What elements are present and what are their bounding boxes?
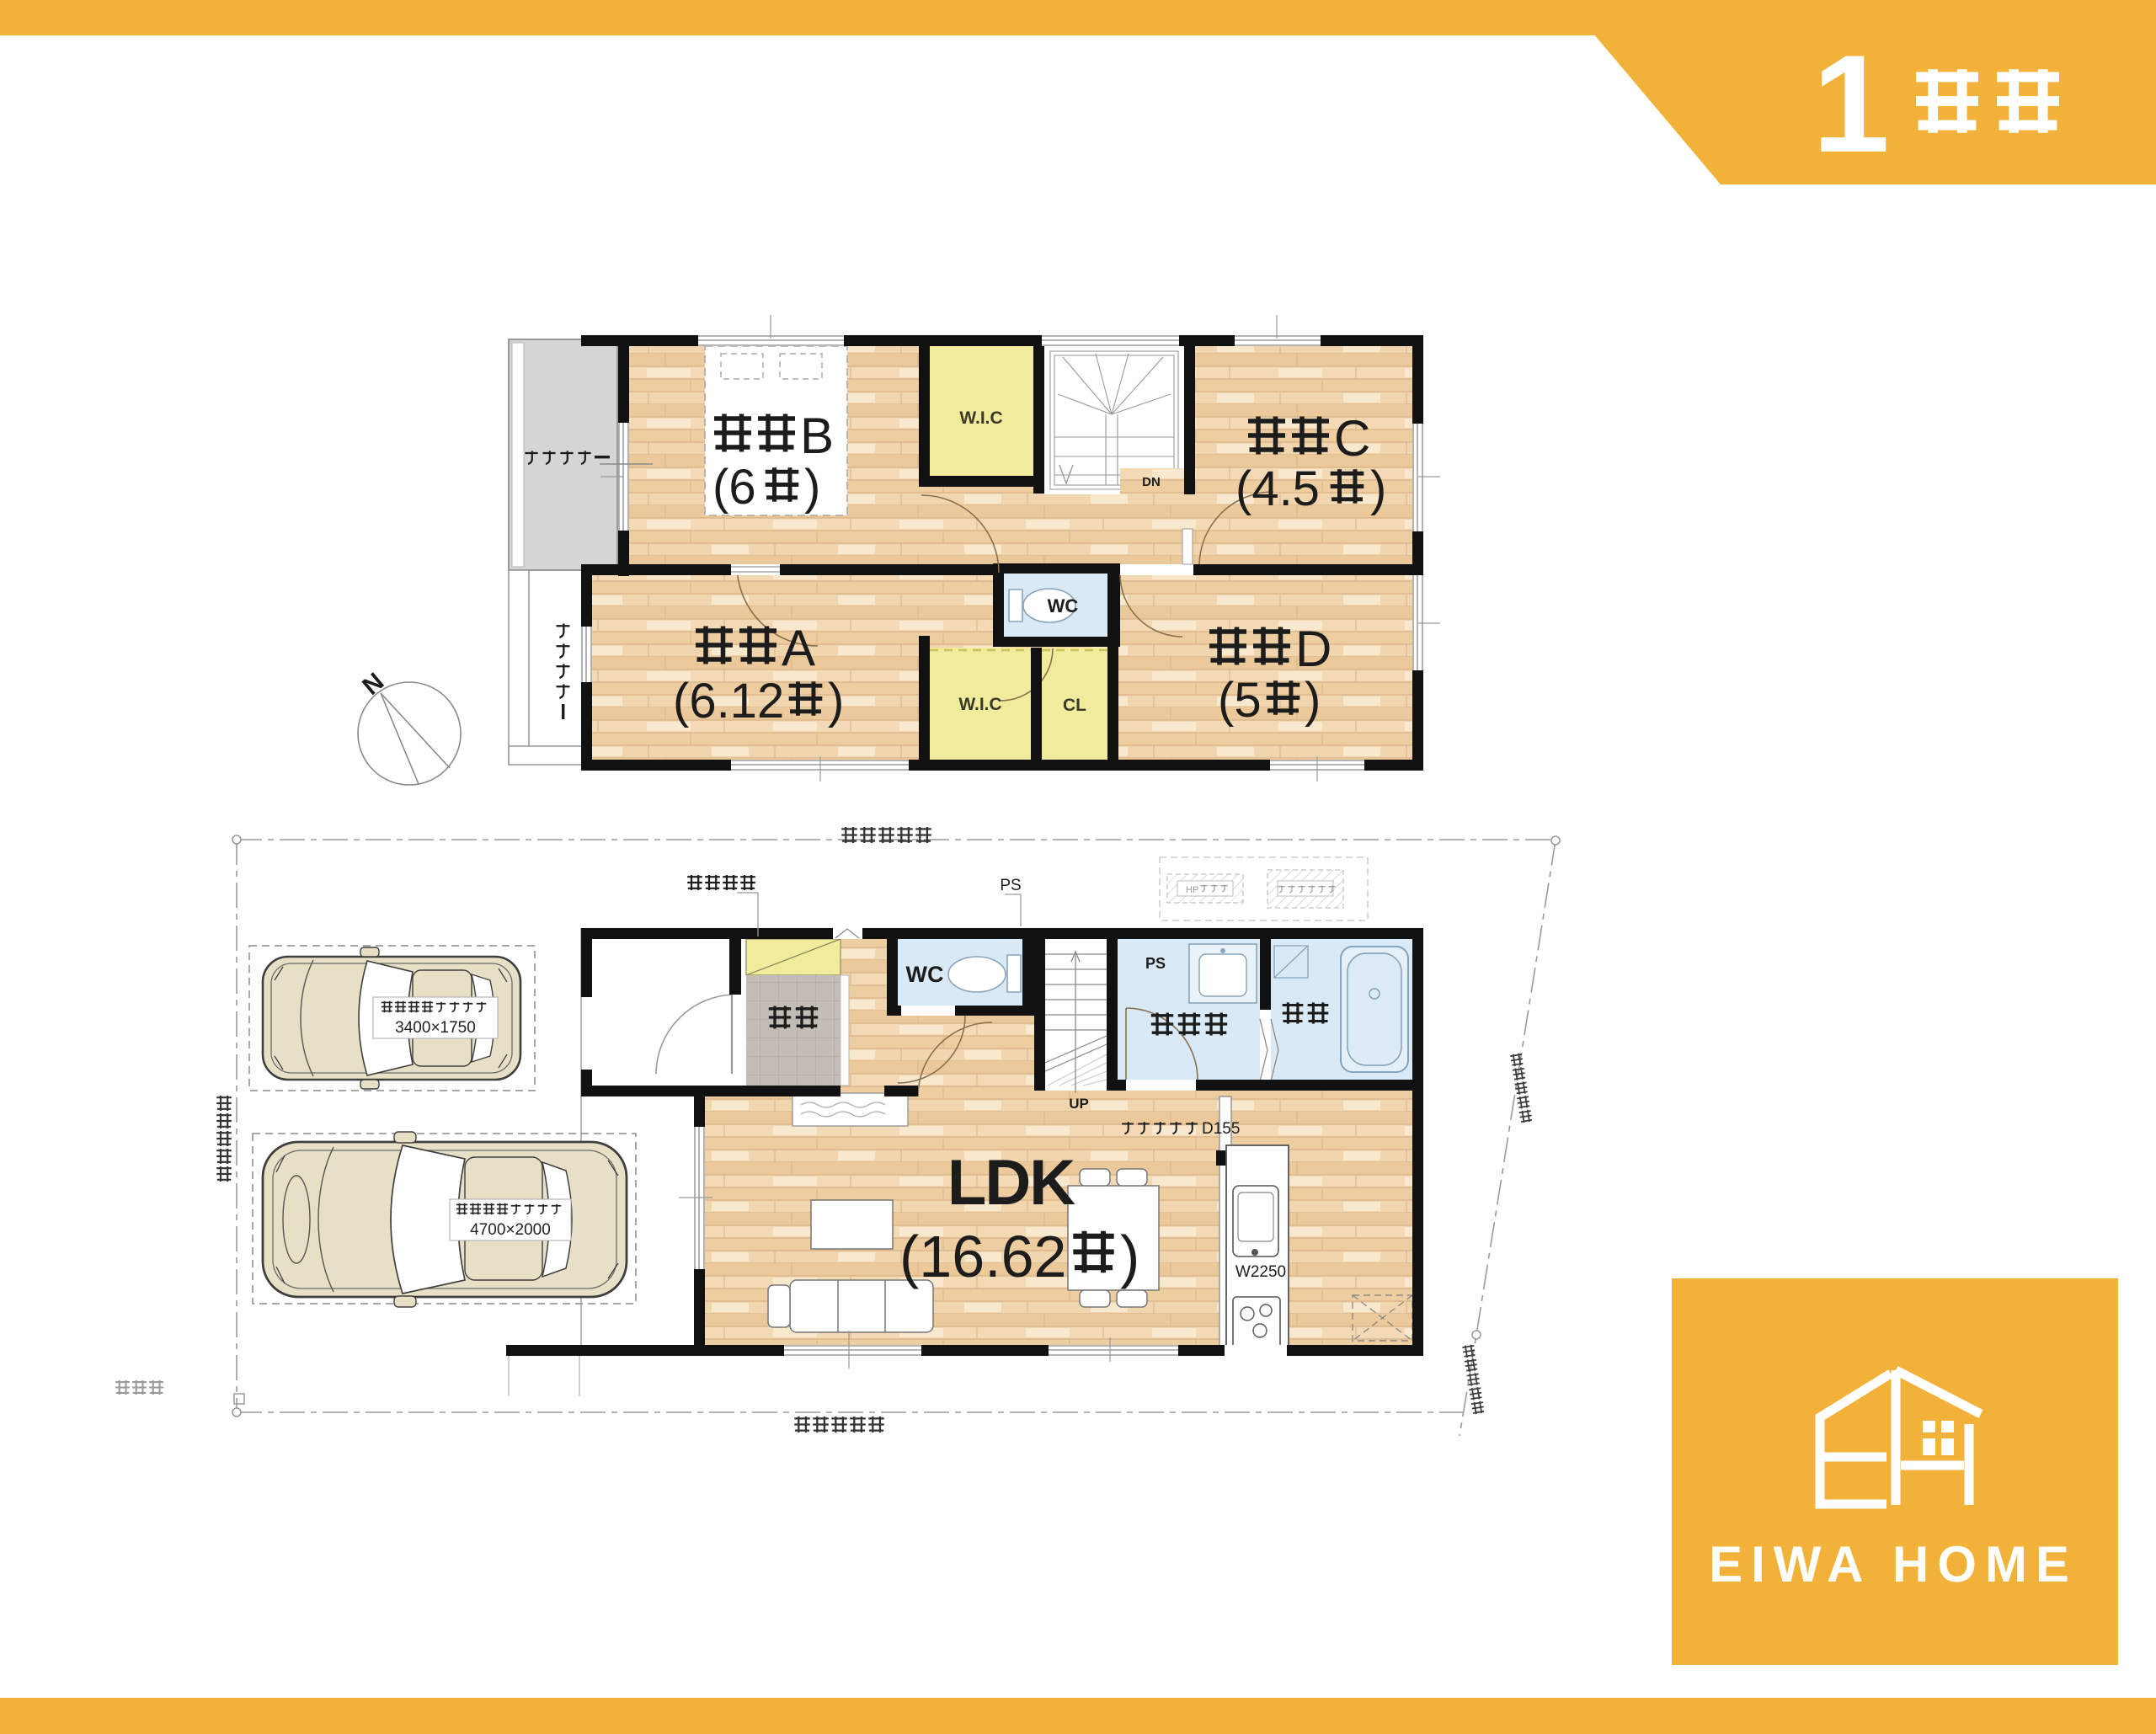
svg-text:CL: CL (1063, 696, 1086, 715)
svg-text:A: A (782, 620, 815, 676)
svg-text:WC: WC (1048, 595, 1079, 616)
svg-text:): ) (828, 674, 844, 728)
svg-text:B: B (800, 408, 834, 464)
svg-text:WC: WC (906, 962, 944, 987)
svg-text:HP: HP (1186, 885, 1198, 895)
svg-text:): ) (1305, 673, 1321, 728)
svg-text:(4.5: (4.5 (1235, 462, 1320, 516)
svg-text:W.I.C: W.I.C (958, 695, 1001, 714)
svg-text:(6: (6 (712, 460, 756, 515)
svg-text:D: D (1295, 621, 1331, 677)
svg-text:): ) (804, 460, 820, 515)
svg-text:): ) (1370, 462, 1386, 516)
svg-text:(5: (5 (1218, 673, 1262, 728)
svg-text:PS: PS (1000, 877, 1021, 894)
svg-text:DN: DN (1142, 475, 1161, 489)
svg-text:LDK: LDK (947, 1147, 1075, 1219)
svg-text:PS: PS (1145, 955, 1166, 972)
svg-text:3400×1750: 3400×1750 (395, 1019, 476, 1037)
svg-text:(6.12: (6.12 (673, 674, 784, 728)
svg-text:W.I.C: W.I.C (959, 408, 1002, 428)
svg-text:C: C (1334, 410, 1370, 467)
svg-text:): ) (1120, 1224, 1139, 1289)
svg-text:W2250: W2250 (1235, 1263, 1286, 1281)
svg-text:EIWA HOME: EIWA HOME (1709, 1536, 2078, 1593)
svg-text:4700×2000: 4700×2000 (470, 1221, 551, 1239)
svg-text:UP: UP (1069, 1096, 1089, 1112)
svg-text:1: 1 (1812, 26, 1890, 181)
svg-text:D155: D155 (1202, 1120, 1240, 1138)
svg-text:(16.62: (16.62 (899, 1224, 1066, 1289)
